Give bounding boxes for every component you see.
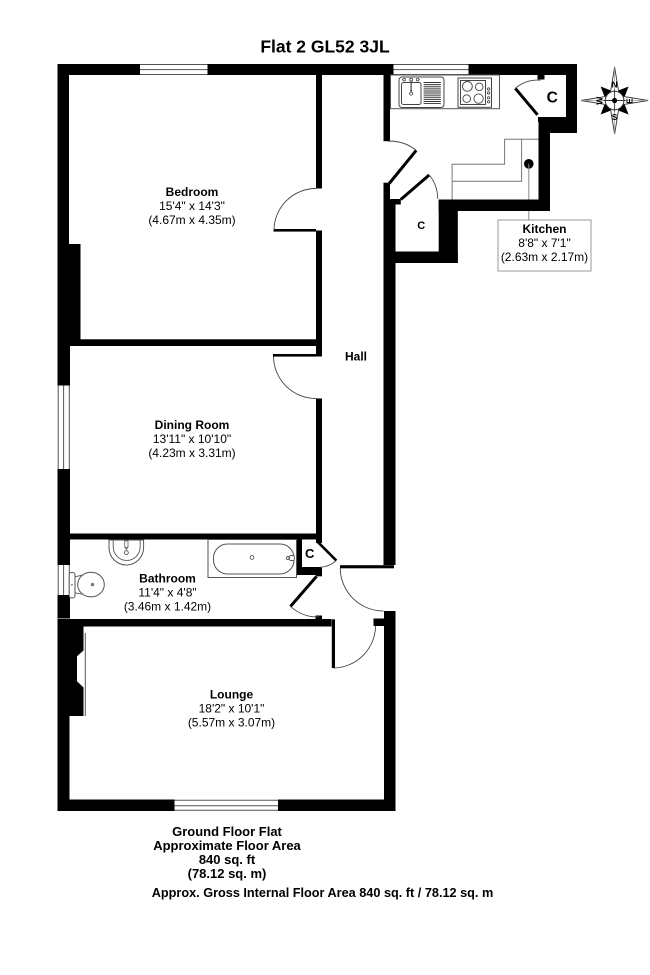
svg-text:S: S: [612, 112, 618, 122]
svg-text:(4.23m x 3.31m): (4.23m x 3.31m): [148, 446, 235, 460]
svg-text:Approximate Floor Area: Approximate Floor Area: [153, 838, 301, 853]
svg-text:11'4" x 4'8": 11'4" x 4'8": [138, 586, 196, 600]
svg-text:W: W: [594, 96, 604, 105]
svg-text:Approx. Gross Internal Floor A: Approx. Gross Internal Floor Area 840 sq…: [152, 886, 494, 900]
svg-text:Dining Room: Dining Room: [155, 418, 230, 432]
svg-text:(4.67m x 4.35m): (4.67m x 4.35m): [148, 213, 235, 227]
svg-text:15'4" x 14'3": 15'4" x 14'3": [159, 199, 225, 213]
svg-text:C: C: [417, 220, 425, 232]
svg-text:E: E: [625, 98, 635, 104]
svg-text:Bedroom: Bedroom: [166, 185, 219, 199]
svg-text:18'2" x 10'1": 18'2" x 10'1": [199, 702, 265, 716]
svg-text:Lounge: Lounge: [210, 688, 254, 702]
svg-text:Hall: Hall: [345, 350, 367, 364]
svg-text:(3.46m x 1.42m): (3.46m x 1.42m): [124, 600, 211, 614]
svg-text:(78.12 sq. m): (78.12 sq. m): [188, 866, 267, 881]
svg-text:8'8" x 7'1": 8'8" x 7'1": [518, 236, 570, 250]
svg-text:840 sq. ft: 840 sq. ft: [199, 852, 256, 867]
svg-text:(2.63m x 2.17m): (2.63m x 2.17m): [501, 250, 588, 264]
svg-text:C: C: [305, 546, 315, 561]
svg-text:N: N: [612, 80, 618, 90]
svg-text:Bathroom: Bathroom: [139, 572, 196, 586]
svg-text:Ground Floor Flat: Ground Floor Flat: [172, 824, 282, 839]
svg-text:13'11" x 10'10": 13'11" x 10'10": [153, 432, 231, 446]
svg-text:C: C: [547, 90, 558, 107]
svg-text:Kitchen: Kitchen: [522, 222, 566, 236]
svg-text:Flat 2 GL52 3JL: Flat 2 GL52 3JL: [260, 37, 390, 57]
svg-text:(5.57m x 3.07m): (5.57m x 3.07m): [188, 716, 275, 730]
